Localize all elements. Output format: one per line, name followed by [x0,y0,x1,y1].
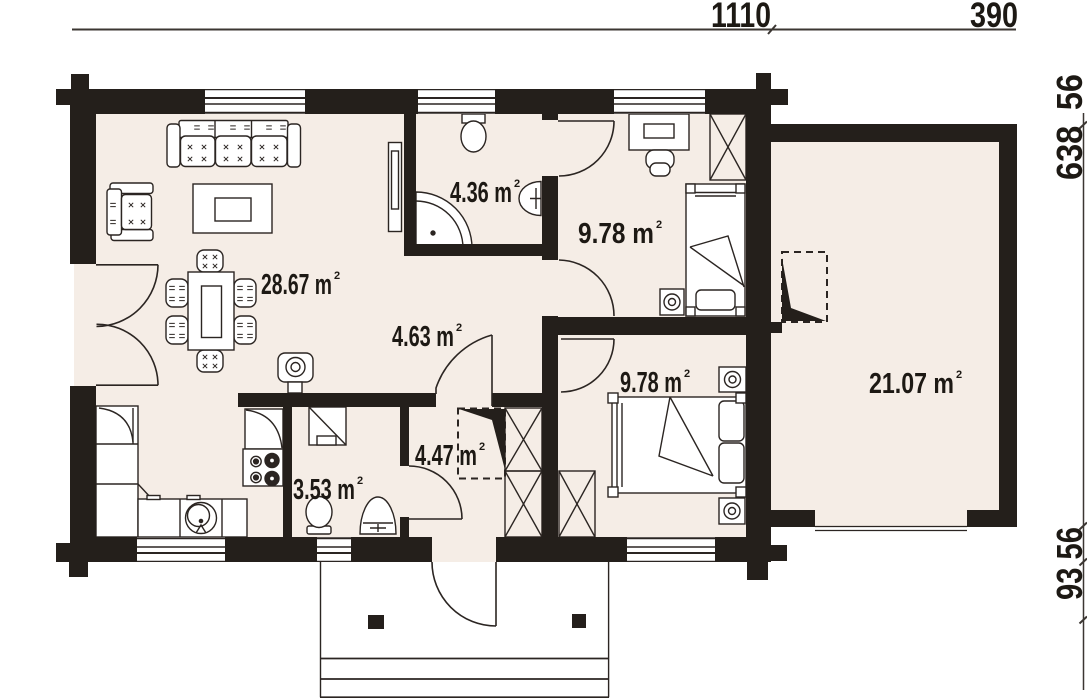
svg-text:9.78 m: 9.78 m [578,218,654,250]
svg-text:2: 2 [956,369,962,381]
svg-text:21.07 m: 21.07 m [869,368,954,400]
svg-text:390: 390 [970,0,1018,35]
svg-text:1110: 1110 [711,0,771,35]
svg-text:2: 2 [357,475,363,487]
svg-text:4.63 m: 4.63 m [392,321,454,353]
svg-text:9.78 m: 9.78 m [620,367,682,399]
svg-text:2: 2 [479,441,485,453]
svg-text:638 56: 638 56 [1049,74,1087,180]
svg-text:4.36 m: 4.36 m [450,177,512,209]
svg-text:2: 2 [656,219,662,231]
svg-text:3.53 m: 3.53 m [293,474,355,506]
svg-text:28.67 m: 28.67 m [261,269,332,301]
svg-text:2: 2 [456,322,462,334]
svg-text:2: 2 [514,178,520,190]
svg-text:93 56: 93 56 [1049,527,1087,600]
svg-text:4.47 m: 4.47 m [415,440,477,472]
svg-text:2: 2 [334,270,340,282]
svg-text:2: 2 [684,368,690,380]
